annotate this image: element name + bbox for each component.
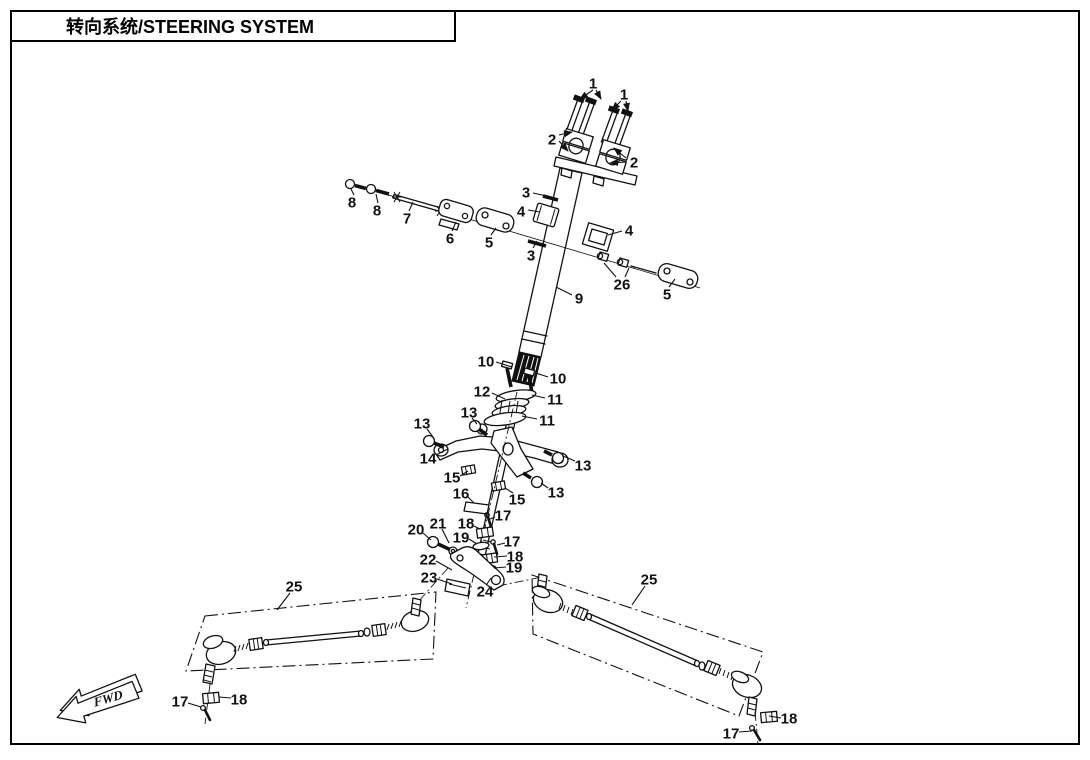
part-26-spacers xyxy=(597,252,656,273)
callout-label-24: 24 xyxy=(477,584,494,601)
callout-label-22: 22 xyxy=(420,552,437,569)
callout-label-7: 7 xyxy=(403,211,411,228)
callout-label-4: 4 xyxy=(625,223,634,240)
callout-label-9: 9 xyxy=(575,291,583,308)
callout-label-25: 25 xyxy=(641,572,658,589)
callout-label-13: 13 xyxy=(461,405,478,422)
callout-label-15: 15 xyxy=(509,492,526,509)
drawing-border xyxy=(11,11,1079,744)
tie-rod-right xyxy=(530,574,765,716)
callout-label-26: 26 xyxy=(614,277,631,294)
callout-leader-17 xyxy=(188,703,201,707)
callout-leader-18 xyxy=(219,697,231,698)
callout-label-21: 21 xyxy=(430,516,447,533)
callout-label-17: 17 xyxy=(172,694,189,711)
callout-leader-22 xyxy=(436,561,452,570)
callout-label-3: 3 xyxy=(522,185,530,202)
callout-label-8: 8 xyxy=(348,195,356,212)
tie-rod-left xyxy=(202,598,432,684)
callout-label-18: 18 xyxy=(781,711,798,728)
callout-leader-9 xyxy=(556,287,572,295)
callout-label-23: 23 xyxy=(421,570,438,587)
callout-leader-19 xyxy=(469,539,477,544)
callout-leader-17 xyxy=(739,731,752,732)
callout-label-1: 1 xyxy=(620,87,628,104)
part-6-coupler xyxy=(437,198,474,230)
callout-label-13: 13 xyxy=(548,485,565,502)
callout-label-11: 11 xyxy=(539,413,555,430)
callout-label-20: 20 xyxy=(408,522,425,539)
callout-label-18: 18 xyxy=(231,692,248,709)
callout-label-3: 3 xyxy=(527,248,535,265)
bottom-hardware-left xyxy=(201,684,220,724)
page-title: 转向系统/STEERING SYSTEM xyxy=(66,16,314,37)
callout-label-6: 6 xyxy=(446,231,454,248)
callout-label-5: 5 xyxy=(663,287,671,304)
diagram-canvas: 转向系统/STEERING SYSTEM xyxy=(0,0,1090,760)
callout-label-15: 15 xyxy=(444,470,461,487)
callout-leader-3 xyxy=(533,193,551,197)
fwd-arrow: FWD xyxy=(51,673,146,730)
callout-label-16: 16 xyxy=(453,486,470,503)
callout-label-19: 19 xyxy=(453,530,470,547)
callout-label-14: 14 xyxy=(420,451,437,468)
callout-label-12: 12 xyxy=(474,384,491,401)
callout-label-4: 4 xyxy=(517,204,526,221)
callout-label-1: 1 xyxy=(589,76,597,93)
callout-label-2: 2 xyxy=(630,155,638,172)
callout-label-11: 11 xyxy=(547,392,563,409)
part-7-joint-rod xyxy=(392,192,445,216)
callout-label-10: 10 xyxy=(550,371,567,388)
callout-label-5: 5 xyxy=(485,235,493,252)
callout-label-19: 19 xyxy=(506,560,523,577)
callout-label-13: 13 xyxy=(414,416,431,433)
callout-label-25: 25 xyxy=(286,579,303,596)
part-16-spacer xyxy=(464,502,489,514)
callout-label-8: 8 xyxy=(373,203,381,220)
callout-label-17: 17 xyxy=(495,508,512,525)
part-23-clamp-piece xyxy=(445,579,470,596)
callout-leader-26 xyxy=(604,263,616,277)
callout-label-2: 2 xyxy=(548,132,556,149)
callout-label-10: 10 xyxy=(478,354,495,371)
callout-label-13: 13 xyxy=(575,458,592,475)
callout-label-17: 17 xyxy=(723,726,740,743)
callout-leader-10 xyxy=(536,373,548,377)
callout-leader-25 xyxy=(632,586,645,605)
